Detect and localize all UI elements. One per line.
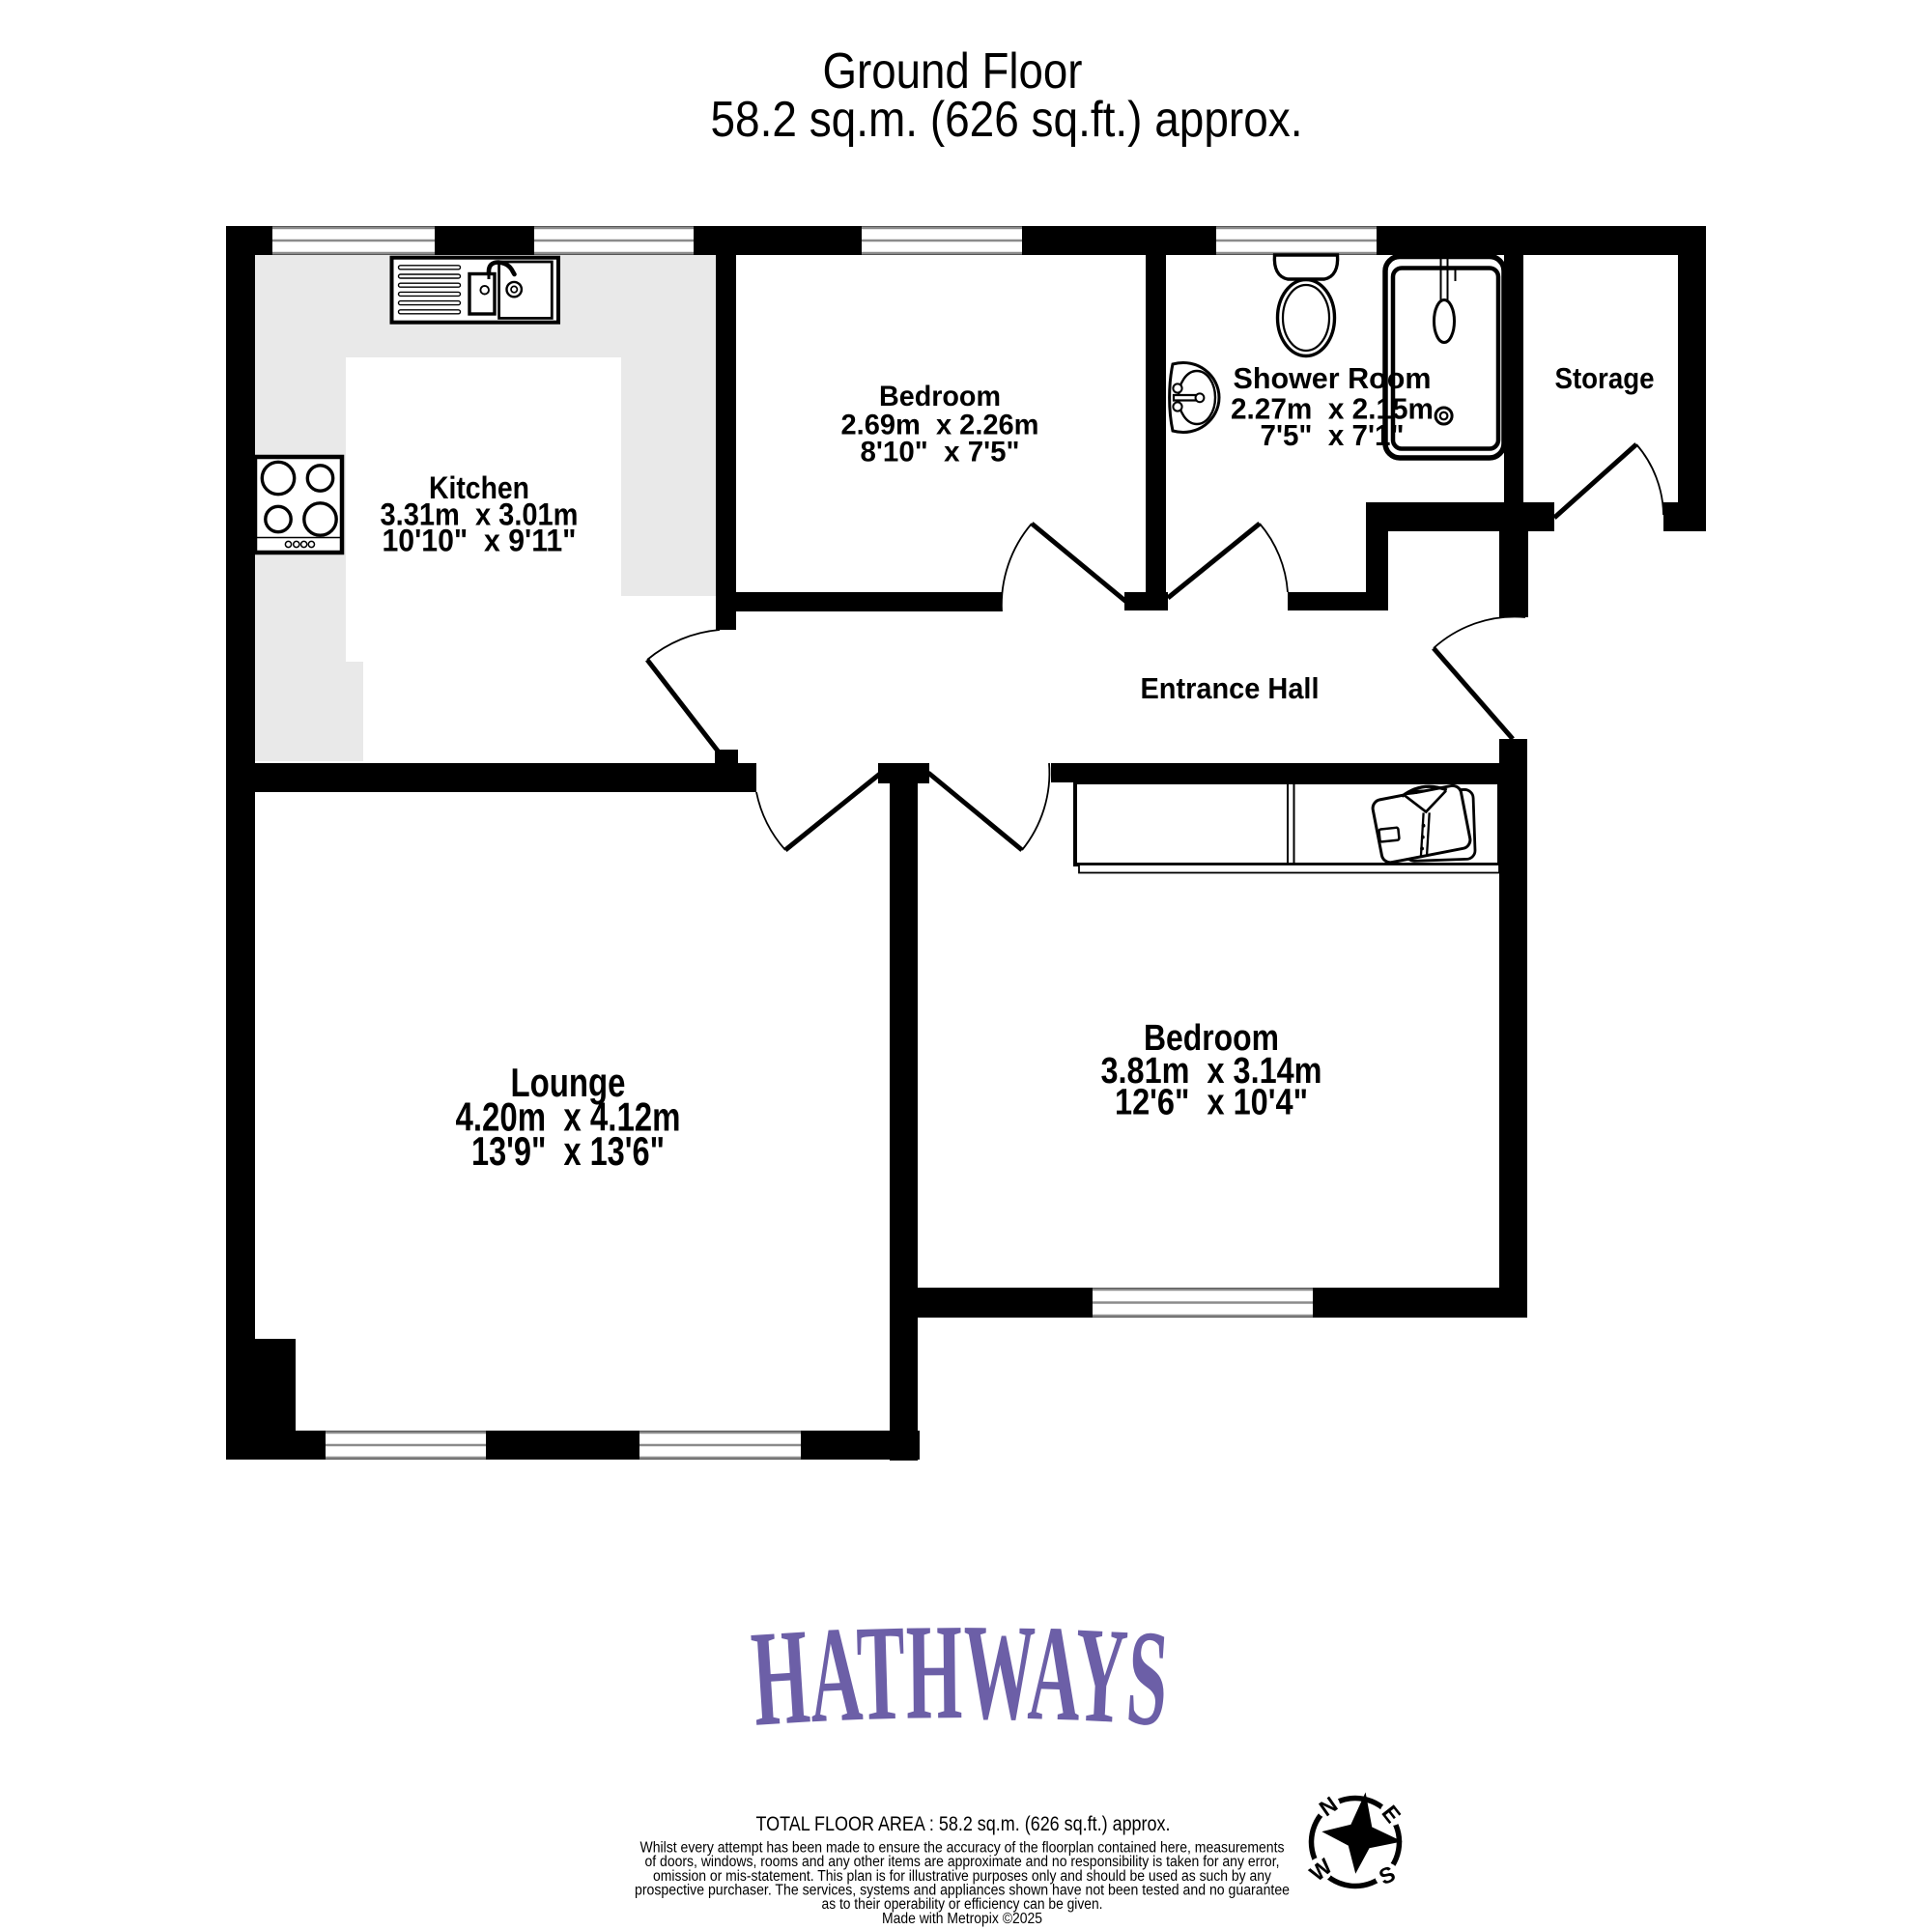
svg-text:Shower Room: Shower Room [1234,361,1432,395]
svg-text:Bedroom: Bedroom [879,381,1001,412]
svg-text:Entrance Hall: Entrance Hall [1141,671,1320,705]
svg-text:10'10" x 9'11": 10'10" x 9'11" [383,524,577,558]
svg-text:7'5" x 7'1": 7'5" x 7'1" [1261,418,1405,452]
svg-text:Storage: Storage [1555,361,1655,395]
svg-text:Made with Metropix ©2025: Made with Metropix ©2025 [882,1911,1042,1927]
svg-text:12'6" x 10'4": 12'6" x 10'4" [1115,1083,1308,1123]
svg-text:8'10" x 7'5": 8'10" x 7'5" [861,437,1020,468]
svg-text:HATHWAYS: HATHWAYS [748,1595,1173,1755]
svg-text:TOTAL FLOOR AREA : 58.2 sq.m.: TOTAL FLOOR AREA : 58.2 sq.m. (626 sq.ft… [756,1813,1171,1835]
svg-text:58.2 sq.m. (626 sq.ft.) approx: 58.2 sq.m. (626 sq.ft.) approx. [711,92,1303,148]
svg-text:13'9" x 13'6": 13'9" x 13'6" [471,1128,665,1174]
